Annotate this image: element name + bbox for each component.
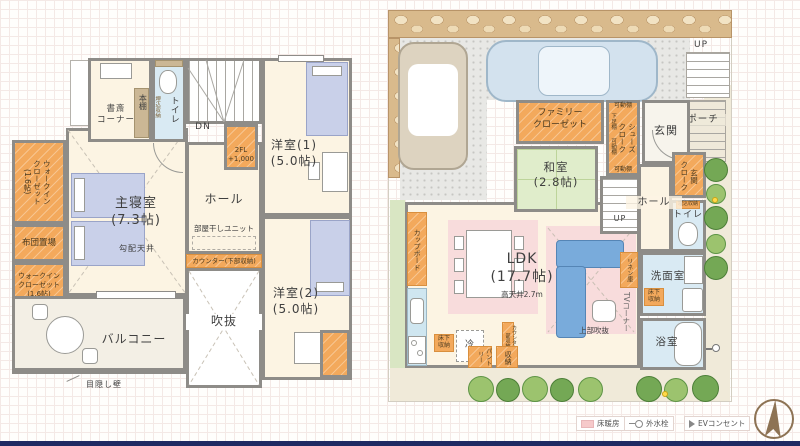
outdoor-faucet-icon: [629, 420, 643, 428]
legend-floor-heating: 床暖房: [576, 416, 625, 431]
compass-icon: [752, 397, 796, 441]
legend-outdoor-faucet: 外水栓: [624, 416, 674, 431]
legend: 床暖房 外水栓 EVコンセント: [0, 0, 800, 446]
floor-heating-swatch: [581, 420, 594, 428]
ev-plug-icon: [689, 420, 695, 428]
legend-floor-heating-label: 床暖房: [597, 418, 620, 429]
legend-outdoor-faucet-label: 外水栓: [646, 418, 669, 429]
label-hall-1f: ホール: [626, 196, 682, 209]
floorplan-canvas: 主寝室 (7.3帖) 勾配天井 書斎 コーナー 本棚 トイレ 埋込収納 DN ホ…: [0, 0, 800, 446]
legend-ev-outlet-label: EVコンセント: [698, 418, 745, 429]
legend-ev-outlet: EVコンセント: [684, 416, 750, 431]
bottom-bar: [0, 441, 800, 446]
